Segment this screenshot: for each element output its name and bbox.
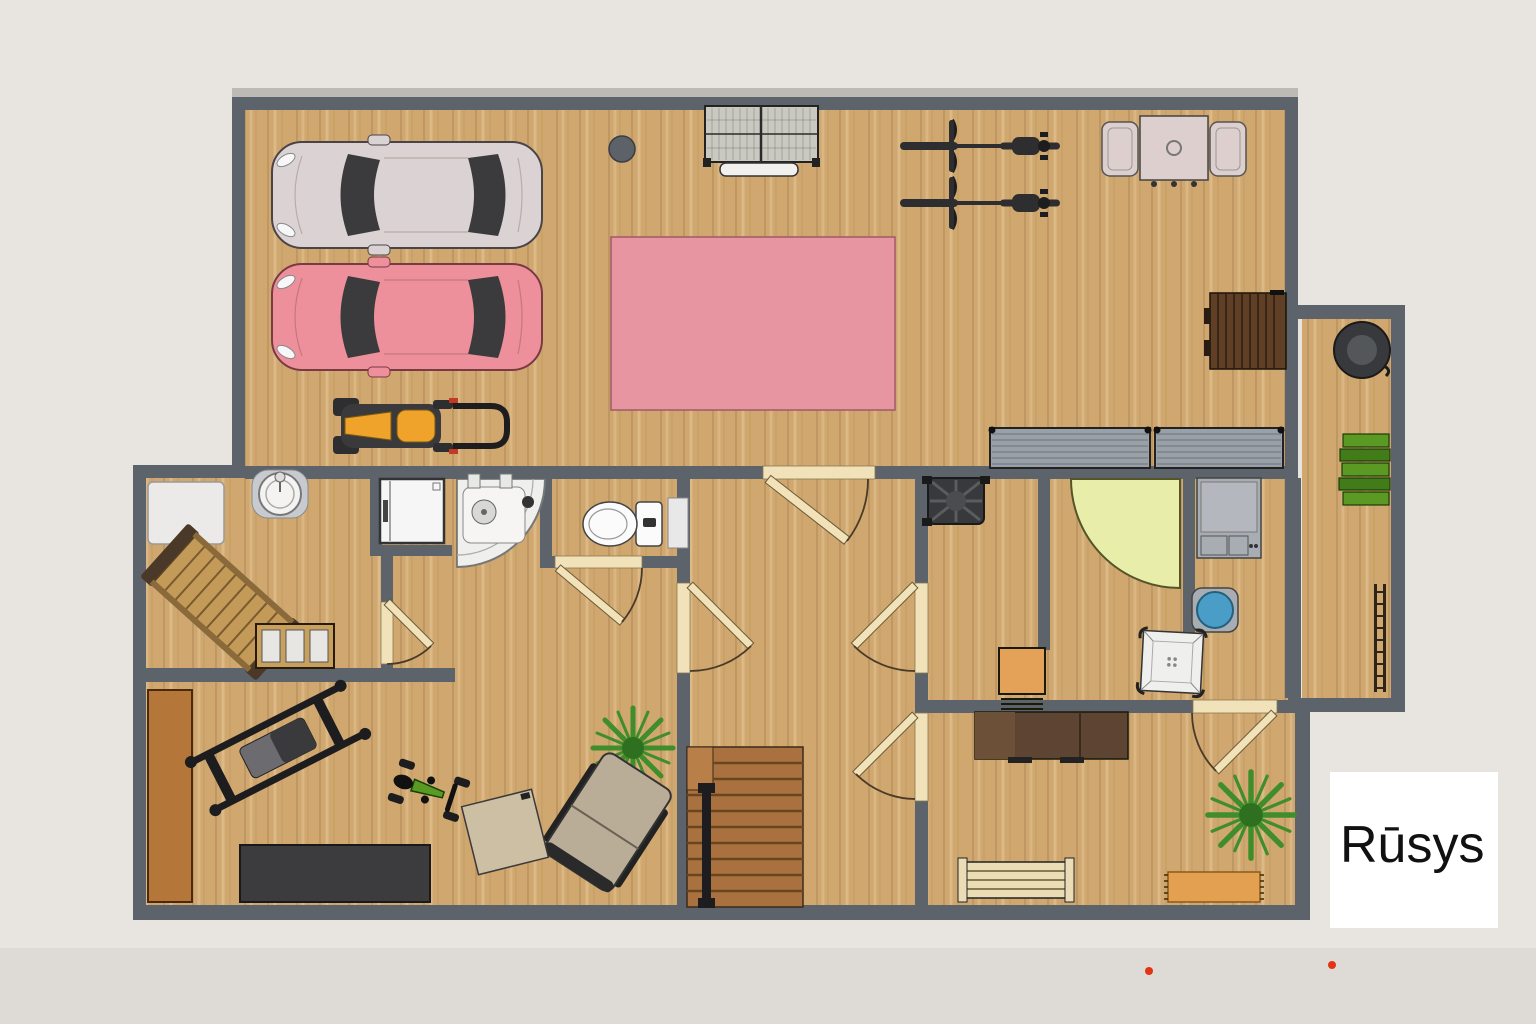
- washing-machine: [380, 479, 444, 543]
- toilet: [583, 498, 688, 548]
- dining-table: [1140, 116, 1208, 180]
- floor-label-card: Rūsys: [1330, 772, 1498, 928]
- wall-top-cap: [232, 88, 1298, 97]
- red-marker-dot-1: [1145, 967, 1153, 975]
- door-recroom: [1193, 700, 1277, 713]
- gray-folding-table-2: [1154, 427, 1285, 469]
- sauna-stove-fan: [922, 476, 990, 526]
- dark-exercise-mat: [240, 845, 430, 902]
- floor-label-text: Rūsys: [1340, 816, 1484, 874]
- gray-folding-table-1: [989, 427, 1152, 469]
- car-white: [272, 135, 542, 255]
- orange-chair: [999, 648, 1045, 709]
- door-hall-east-2: [915, 713, 928, 801]
- floorplan-page: Rūsys: [0, 0, 1536, 1024]
- stair-handrail: [702, 790, 711, 902]
- door-hall-west: [677, 583, 690, 673]
- dining-chair-right: [1210, 122, 1246, 176]
- gray-appliance: [1197, 478, 1261, 558]
- slat-bench: [958, 858, 1074, 902]
- car-pink: [272, 257, 542, 377]
- door-garage-hall: [763, 466, 875, 479]
- cushion-bench: [256, 624, 334, 668]
- main-staircase-with-rail: [687, 747, 803, 908]
- dark-wood-staircase: [1204, 290, 1286, 369]
- red-marker-dot-2: [1328, 961, 1336, 969]
- pink-rug: [611, 237, 895, 410]
- small-white-bench: [720, 163, 798, 176]
- dining-chair-left: [1102, 122, 1138, 176]
- background-bottom-strip: [0, 948, 1536, 1024]
- brown-sideboard: [975, 712, 1128, 763]
- potted-plant-2: [1208, 772, 1294, 858]
- brown-wardrobe: [148, 690, 192, 902]
- mesh-workbench-table: [703, 106, 820, 167]
- dining-table-with-two-chairs: [1102, 116, 1246, 187]
- square-shower-tray: [1137, 627, 1207, 697]
- green-stacked-chairs: [1339, 434, 1390, 505]
- door-hall-east-1: [915, 583, 928, 673]
- blue-wash-basin: [1192, 588, 1238, 632]
- round-sink: [252, 470, 308, 518]
- orange-rug: [1164, 872, 1264, 902]
- annex-floor: [1302, 319, 1391, 698]
- door-wc: [555, 556, 642, 568]
- round-stove: [1334, 322, 1390, 378]
- round-bucket: [609, 136, 635, 162]
- basement-floorplan: Rūsys: [0, 0, 1536, 1024]
